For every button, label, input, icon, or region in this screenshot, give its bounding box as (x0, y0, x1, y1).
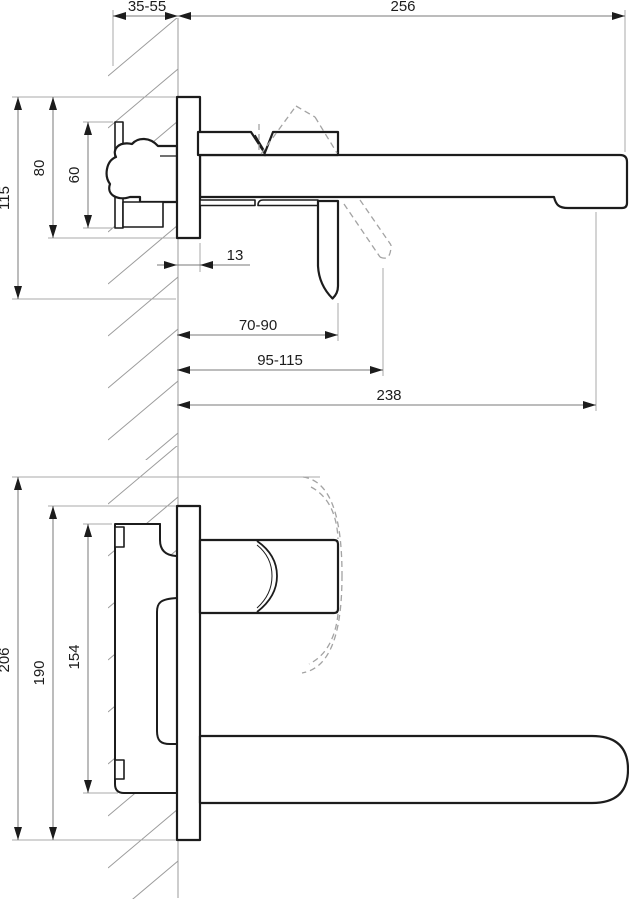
wall-plate-side (177, 97, 200, 238)
wall-plate-plan (177, 506, 200, 840)
plan-view (115, 477, 628, 840)
concealed-body-fill (115, 524, 176, 793)
dim-label-overall-height: 115 (0, 186, 13, 210)
lever-blade (318, 201, 338, 299)
lower-bracket (123, 202, 163, 227)
fixing-tab-bottom (115, 760, 124, 779)
dim-label-body-width: 154 (66, 644, 83, 669)
dim-label-spout-length: 256 (390, 0, 415, 15)
dim-label-body-height: 60 (66, 167, 83, 184)
side-view (107, 97, 627, 299)
dim-label-plate-width: 190 (31, 660, 48, 685)
spout-collar (200, 200, 255, 206)
concealed-body-top-step (160, 524, 176, 556)
dim-label-spout-reach: 238 (376, 387, 401, 404)
faucet-installation-drawing: 35-55 256 115 80 60 13 70-90 95-115 238 … (0, 0, 629, 900)
dim-label-handle-reach-closed: 70-90 (239, 317, 277, 334)
concealed-valve-body (107, 139, 177, 202)
spout-plan (200, 736, 628, 803)
dim-label-plate-thickness: 13 (227, 247, 244, 264)
wall-hatch-top (108, 17, 178, 492)
technical-drawing-page: 35-55 256 115 80 60 13 70-90 95-115 238 … (0, 0, 629, 900)
fixing-tab-top (115, 527, 124, 547)
dim-label-wall-depth: 35-55 (128, 0, 166, 15)
dim-label-handle-reach-open: 95-115 (257, 352, 303, 369)
dim-label-overall-width: 206 (0, 647, 13, 672)
dim-label-plate-height: 80 (31, 160, 48, 177)
lever-base-bar (258, 200, 318, 206)
